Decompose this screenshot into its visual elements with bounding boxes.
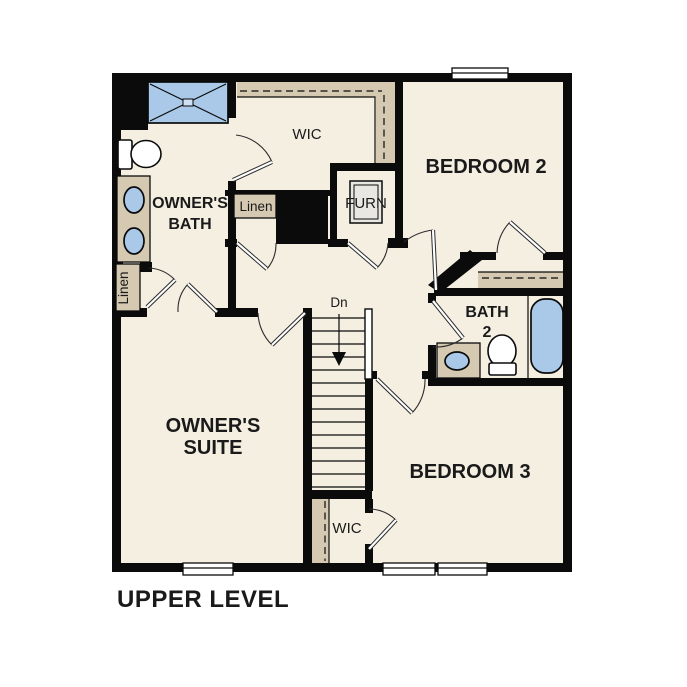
window-top: [452, 68, 508, 79]
floor-plan-page: BEDROOM 2 BEDROOM 3 OWNER'SSUITE OWNER'S…: [0, 0, 687, 687]
window-bottom-right: [438, 563, 487, 575]
wic-upper-shelf-right: [376, 82, 395, 163]
page-title: UPPER LEVEL: [117, 586, 289, 613]
toilet-icon: [118, 140, 161, 169]
room-label-wic-lower: WIC: [332, 520, 361, 537]
room-label-bedroom2: BEDROOM 2: [425, 156, 546, 178]
vanity: [437, 343, 480, 378]
sink-icon: [445, 352, 469, 370]
label-linen-upper: Linen: [239, 199, 272, 214]
sink-icon: [124, 187, 144, 213]
label-stairs-down: Dn: [330, 295, 347, 310]
bathtub-icon: [531, 299, 563, 373]
mid-chase: [276, 196, 328, 244]
room-label-bedroom3: BEDROOM 3: [409, 461, 530, 483]
wic-lower-shelf: [312, 499, 329, 563]
corner-chase: [112, 73, 148, 130]
shower-icon: [148, 82, 228, 123]
toilet-icon: [488, 335, 516, 375]
label-furnace: FURN: [345, 195, 387, 212]
stair-handrail: [365, 309, 372, 379]
wic-upper-shelf-top: [237, 82, 395, 97]
double-vanity: [117, 176, 150, 262]
window-bottom-mid: [383, 563, 435, 575]
sink-icon: [124, 228, 144, 254]
bedroom2-closet-shelf: [478, 272, 563, 288]
label-linen-left: Linen: [116, 271, 131, 304]
window-bottom-left: [183, 563, 233, 575]
floor-plan-drawing: BEDROOM 2 BEDROOM 3 OWNER'SSUITE OWNER'S…: [0, 0, 687, 687]
room-label-wic-upper: WIC: [292, 126, 321, 143]
